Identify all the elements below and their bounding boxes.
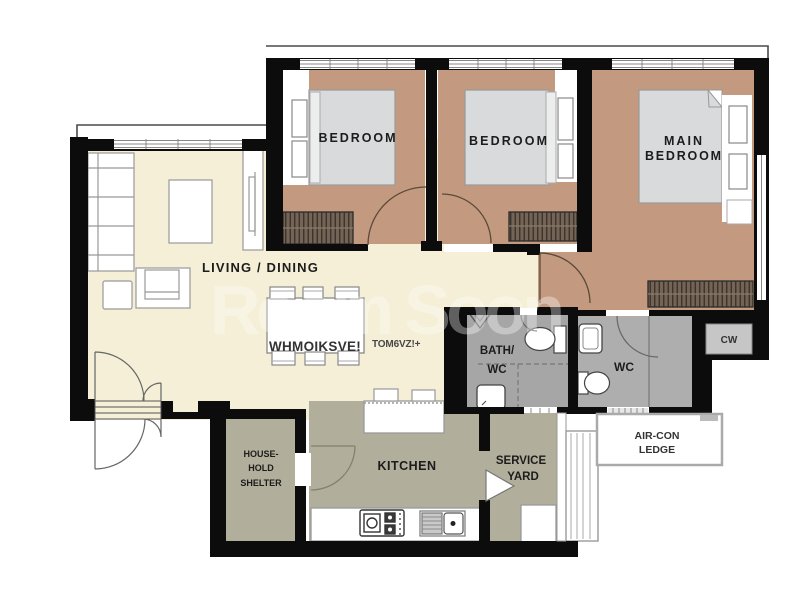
svg-text:WC: WC (487, 364, 506, 376)
svg-text:YARD: YARD (507, 471, 539, 483)
svg-text:KITCHEN: KITCHEN (377, 459, 436, 473)
svg-text:Room Soon: Room Soon (210, 271, 565, 349)
svg-text:LEDGE: LEDGE (639, 444, 675, 456)
svg-text:SHELTER: SHELTER (240, 478, 282, 488)
svg-text:BEDROOM: BEDROOM (645, 149, 721, 163)
svg-text:HOLD: HOLD (248, 463, 274, 473)
svg-text:WC: WC (614, 360, 634, 374)
svg-text:HOUSE-: HOUSE- (243, 449, 278, 459)
svg-text:AIR-CON: AIR-CON (635, 430, 680, 442)
svg-text:MAIN: MAIN (664, 134, 702, 148)
svg-text:CW: CW (721, 335, 738, 346)
svg-text:SERVICE: SERVICE (496, 455, 547, 467)
